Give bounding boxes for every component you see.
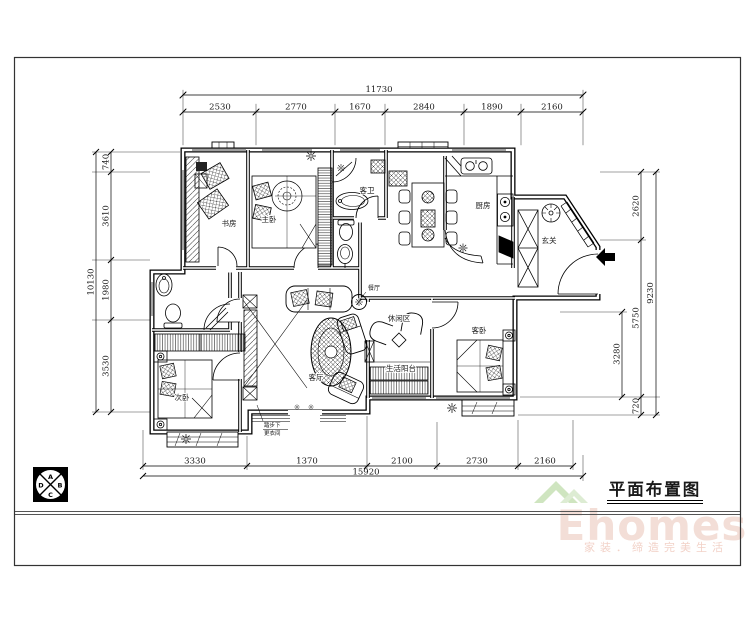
dim-top-seg-4: 2840 (413, 103, 435, 113)
dim-top-seg-6: 2160 (541, 103, 563, 113)
dim-top-seg-5: 1890 (481, 103, 503, 113)
dim-right-seg-1: 2620 (632, 195, 642, 217)
section-marker: A B C D (33, 467, 68, 502)
dimension-bottom: 3330 1370 2100 2730 2160 15920 (140, 416, 586, 481)
plant-icon (308, 404, 314, 410)
note-line1: 踏步下 (264, 421, 281, 429)
dim-top-seg-1: 2530 (209, 103, 231, 113)
drawing-title: 平面布置图 (609, 479, 702, 499)
furniture-dining (399, 183, 457, 247)
dim-bottom-seg-3: 2100 (391, 457, 413, 467)
furniture-kitchen (445, 156, 513, 264)
dim-top-total: 11730 (365, 85, 392, 95)
plant-icon (294, 404, 300, 410)
room-label-kitchen: 厨房 (476, 200, 491, 210)
floor-plan-screenshot: Ehomes 家装．缔造完美生活 11730 2530 2770 1670 28… (0, 0, 756, 630)
dim-bottom-seg-5: 2160 (534, 457, 556, 467)
marker-letter-d: D (38, 482, 44, 490)
furniture-guest-bath (332, 158, 407, 210)
dim-bottom-seg-1: 3330 (184, 457, 206, 467)
room-label-guest-bath: 客卫 (360, 185, 375, 195)
dim-left-seg-1: 740 (102, 154, 112, 170)
marker-letter-c: C (48, 491, 53, 499)
furniture-small-bath (338, 220, 355, 268)
furniture-study (186, 157, 229, 262)
dim-bottom-seg-4: 2730 (466, 457, 488, 467)
dim-bottom-seg-2: 1370 (296, 457, 318, 467)
dim-right-total: 9230 (646, 282, 656, 304)
marker-letter-b: B (58, 482, 63, 490)
furniture-second-bedroom (154, 334, 245, 430)
marker-letter-a: A (48, 473, 53, 481)
dim-right-seg-3: 720 (632, 398, 642, 414)
dim-bottom-total: 15920 (352, 468, 379, 478)
room-label-entry: 玄关 (542, 235, 557, 245)
floor-plan-drawing: Ehomes 家装．缔造完美生活 11730 2530 2770 1670 28… (0, 0, 756, 630)
room-label-study: 书房 (222, 218, 237, 228)
plant-icon (306, 151, 316, 161)
room-label-living: 客厅 (309, 372, 324, 382)
dimension-top: 11730 2530 2770 1670 2840 1890 2160 (180, 85, 586, 145)
dim-left-total: 10130 (87, 268, 97, 295)
room-label-leisure: 休闲区 (388, 313, 411, 323)
window-sill-guest-bedroom (462, 400, 514, 416)
room-label-balcony: 生活阳台 (386, 363, 416, 373)
room-label-guest: 客卧 (472, 325, 487, 335)
dim-right-seg-2: 5750 (632, 307, 642, 329)
room-label-second: 次卧 (175, 392, 190, 402)
dim-left-seg-2: 3610 (102, 205, 112, 227)
note-line2: 更衣间 (264, 429, 281, 437)
bay-window-bottom-left (167, 432, 238, 447)
furniture-master-bath (156, 274, 230, 330)
furniture-living (286, 286, 374, 406)
room-label-master: 主卧 (262, 214, 277, 224)
room-label-dining: 餐厅 (368, 284, 380, 292)
plant-icon (447, 403, 457, 413)
dim-right-inner: 3280 (613, 343, 623, 365)
dim-top-seg-3: 1670 (349, 103, 371, 113)
furniture-guest-bedroom (457, 330, 515, 395)
drawing-title-block: 平面布置图 (607, 479, 703, 504)
watermark-tagline: 家装．缔造完美生活 (584, 540, 728, 554)
dim-left-seg-4: 3530 (102, 355, 112, 377)
dimension-right: 3280 2620 5750 720 9230 (518, 169, 660, 418)
corridor (243, 295, 307, 400)
dim-top-seg-2: 2770 (285, 103, 307, 113)
dim-left-seg-3: 1980 (102, 279, 112, 301)
